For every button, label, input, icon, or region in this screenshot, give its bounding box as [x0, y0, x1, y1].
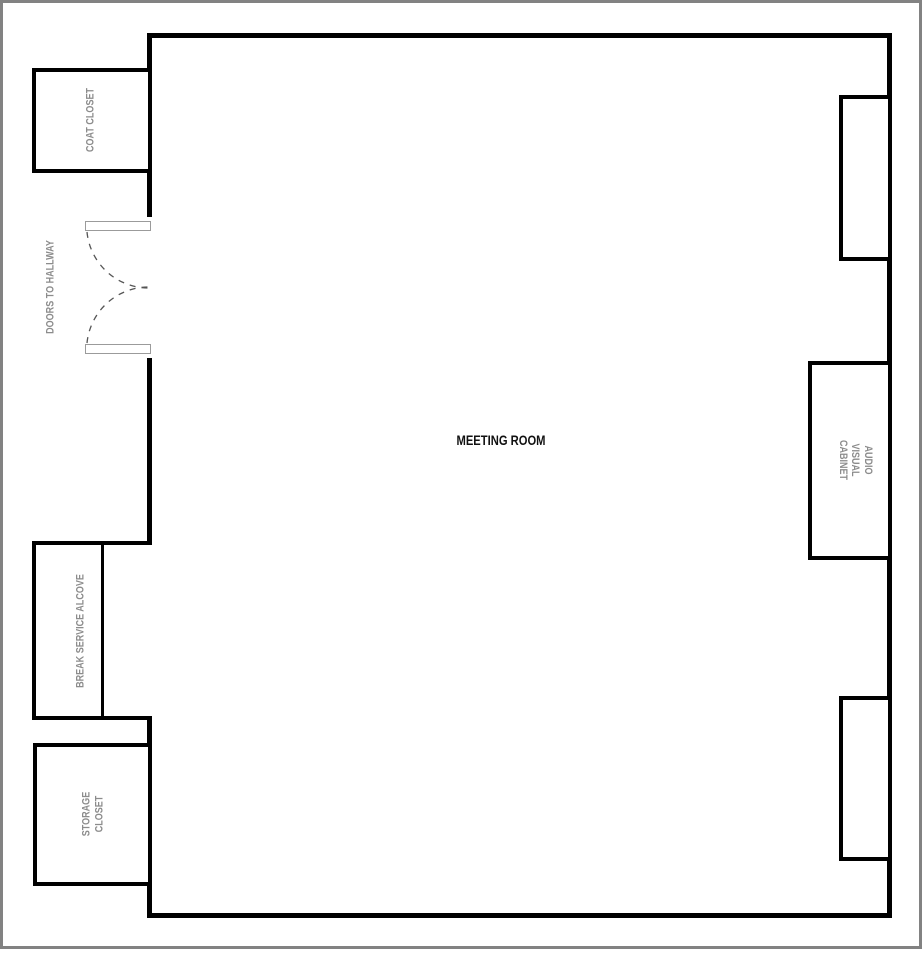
alcove-counter-line: [101, 545, 104, 716]
break-service-alcove-label: BREAK SERVICE ALCOVE: [75, 574, 88, 688]
meeting-room-wall-left-middle: [147, 358, 152, 545]
coat-closet-label: COAT CLOSET: [85, 88, 98, 152]
meeting-room-wall-top: [147, 33, 892, 38]
meeting-room-label: MEETING ROOM: [457, 432, 546, 448]
storage-closet-label: STORAGE CLOSET: [80, 792, 105, 836]
right-wall-cabinet-top: [839, 95, 892, 261]
floor-plan-page: COAT CLOSET DOORS TO HALLWAY BREAK SERVI…: [0, 0, 922, 954]
alcove-wall-left: [32, 541, 36, 720]
alcove-wall-bottom: [32, 716, 152, 720]
audio-visual-cabinet-label: AUDIO VISUAL CABINET: [836, 433, 874, 488]
meeting-room-wall-bottom: [147, 913, 892, 918]
doors-to-hallway-label: DOORS TO HALLWAY: [45, 240, 58, 334]
right-wall-cabinet-bottom: [839, 696, 892, 861]
door-leaf-bottom: [85, 344, 151, 354]
door-leaf-top: [85, 221, 151, 231]
alcove-wall-top: [32, 541, 152, 545]
